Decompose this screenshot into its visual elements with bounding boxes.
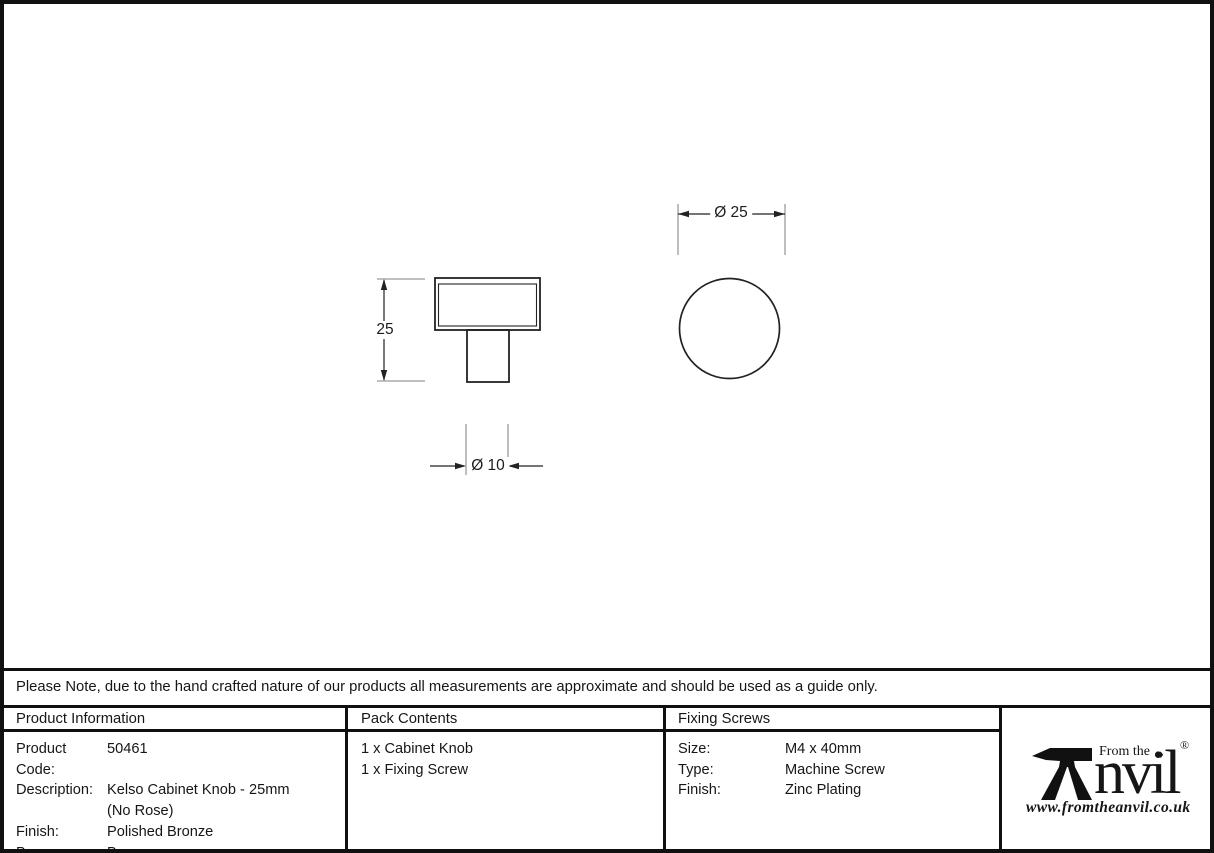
field-label <box>16 801 107 822</box>
field-label: Finish: <box>16 822 107 843</box>
table-row: Description: Kelso Cabinet Knob - 25mm <box>16 780 290 801</box>
header-product-information: Product Information <box>16 711 145 727</box>
divider-pack-fixing <box>663 705 666 849</box>
list-item: 1 x Cabinet Knob <box>361 739 473 760</box>
field-label: Finish: <box>678 780 785 801</box>
brand-logo: From the ♦ nvil ® www.fromtheanvil.co.uk <box>1002 708 1206 847</box>
table-header-bottom-border <box>4 729 1002 732</box>
field-label: Product Code: <box>16 739 107 780</box>
product-information-cell: Product Code: 50461 Description: Kelso C… <box>16 739 290 853</box>
field-value: 50461 <box>107 739 148 780</box>
stem-diameter-label: Ø 10 <box>467 457 509 475</box>
divider-product-pack <box>345 705 348 849</box>
knob-diameter-label: Ø 25 <box>710 204 752 222</box>
field-value: M4 x 40mm <box>785 739 861 760</box>
table-row: Base Material: Bronze <box>16 843 290 853</box>
field-value: Kelso Cabinet Knob - 25mm <box>107 780 290 801</box>
table-row: Size: M4 x 40mm <box>678 739 885 760</box>
header-pack-contents: Pack Contents <box>361 711 457 727</box>
table-row: (No Rose) <box>16 801 290 822</box>
table-row: Type: Machine Screw <box>678 760 885 781</box>
height-dimension-label: 25 <box>372 321 397 339</box>
field-value: Zinc Plating <box>785 780 861 801</box>
technical-drawing <box>0 0 1214 670</box>
spec-sheet: 25 Ø 10 Ø 25 Please Note, due to the han… <box>0 0 1214 853</box>
knob-side-view <box>435 278 540 382</box>
field-value: Polished Bronze <box>107 822 213 843</box>
table-row: Finish: Zinc Plating <box>678 780 885 801</box>
logo-brand-text: nvil <box>1094 747 1178 799</box>
drawing-area-bottom-border <box>0 668 1214 671</box>
registered-trademark-icon: ® <box>1180 738 1189 753</box>
pack-contents-cell: 1 x Cabinet Knob 1 x Fixing Screw <box>361 739 473 780</box>
field-label: Type: <box>678 760 785 781</box>
table-row: Product Code: 50461 <box>16 739 290 780</box>
field-value: Bronze <box>107 843 153 853</box>
header-fixing-screws: Fixing Screws <box>678 711 770 727</box>
field-value: Machine Screw <box>785 760 885 781</box>
field-label: Base Material: <box>16 843 107 853</box>
field-label: Size: <box>678 739 785 760</box>
measurement-note: Please Note, due to the hand crafted nat… <box>16 679 878 695</box>
logo-website: www.fromtheanvil.co.uk <box>1026 799 1191 817</box>
pack-item: 1 x Cabinet Knob <box>361 739 473 760</box>
field-value: (No Rose) <box>107 801 174 822</box>
fixing-screws-cell: Size: M4 x 40mm Type: Machine Screw Fini… <box>678 739 885 801</box>
knob-top-view-circle <box>680 279 780 379</box>
list-item: 1 x Fixing Screw <box>361 760 473 781</box>
anvil-icon <box>1032 743 1098 801</box>
pack-item: 1 x Fixing Screw <box>361 760 468 781</box>
table-row: Finish: Polished Bronze <box>16 822 290 843</box>
field-label: Description: <box>16 780 107 801</box>
